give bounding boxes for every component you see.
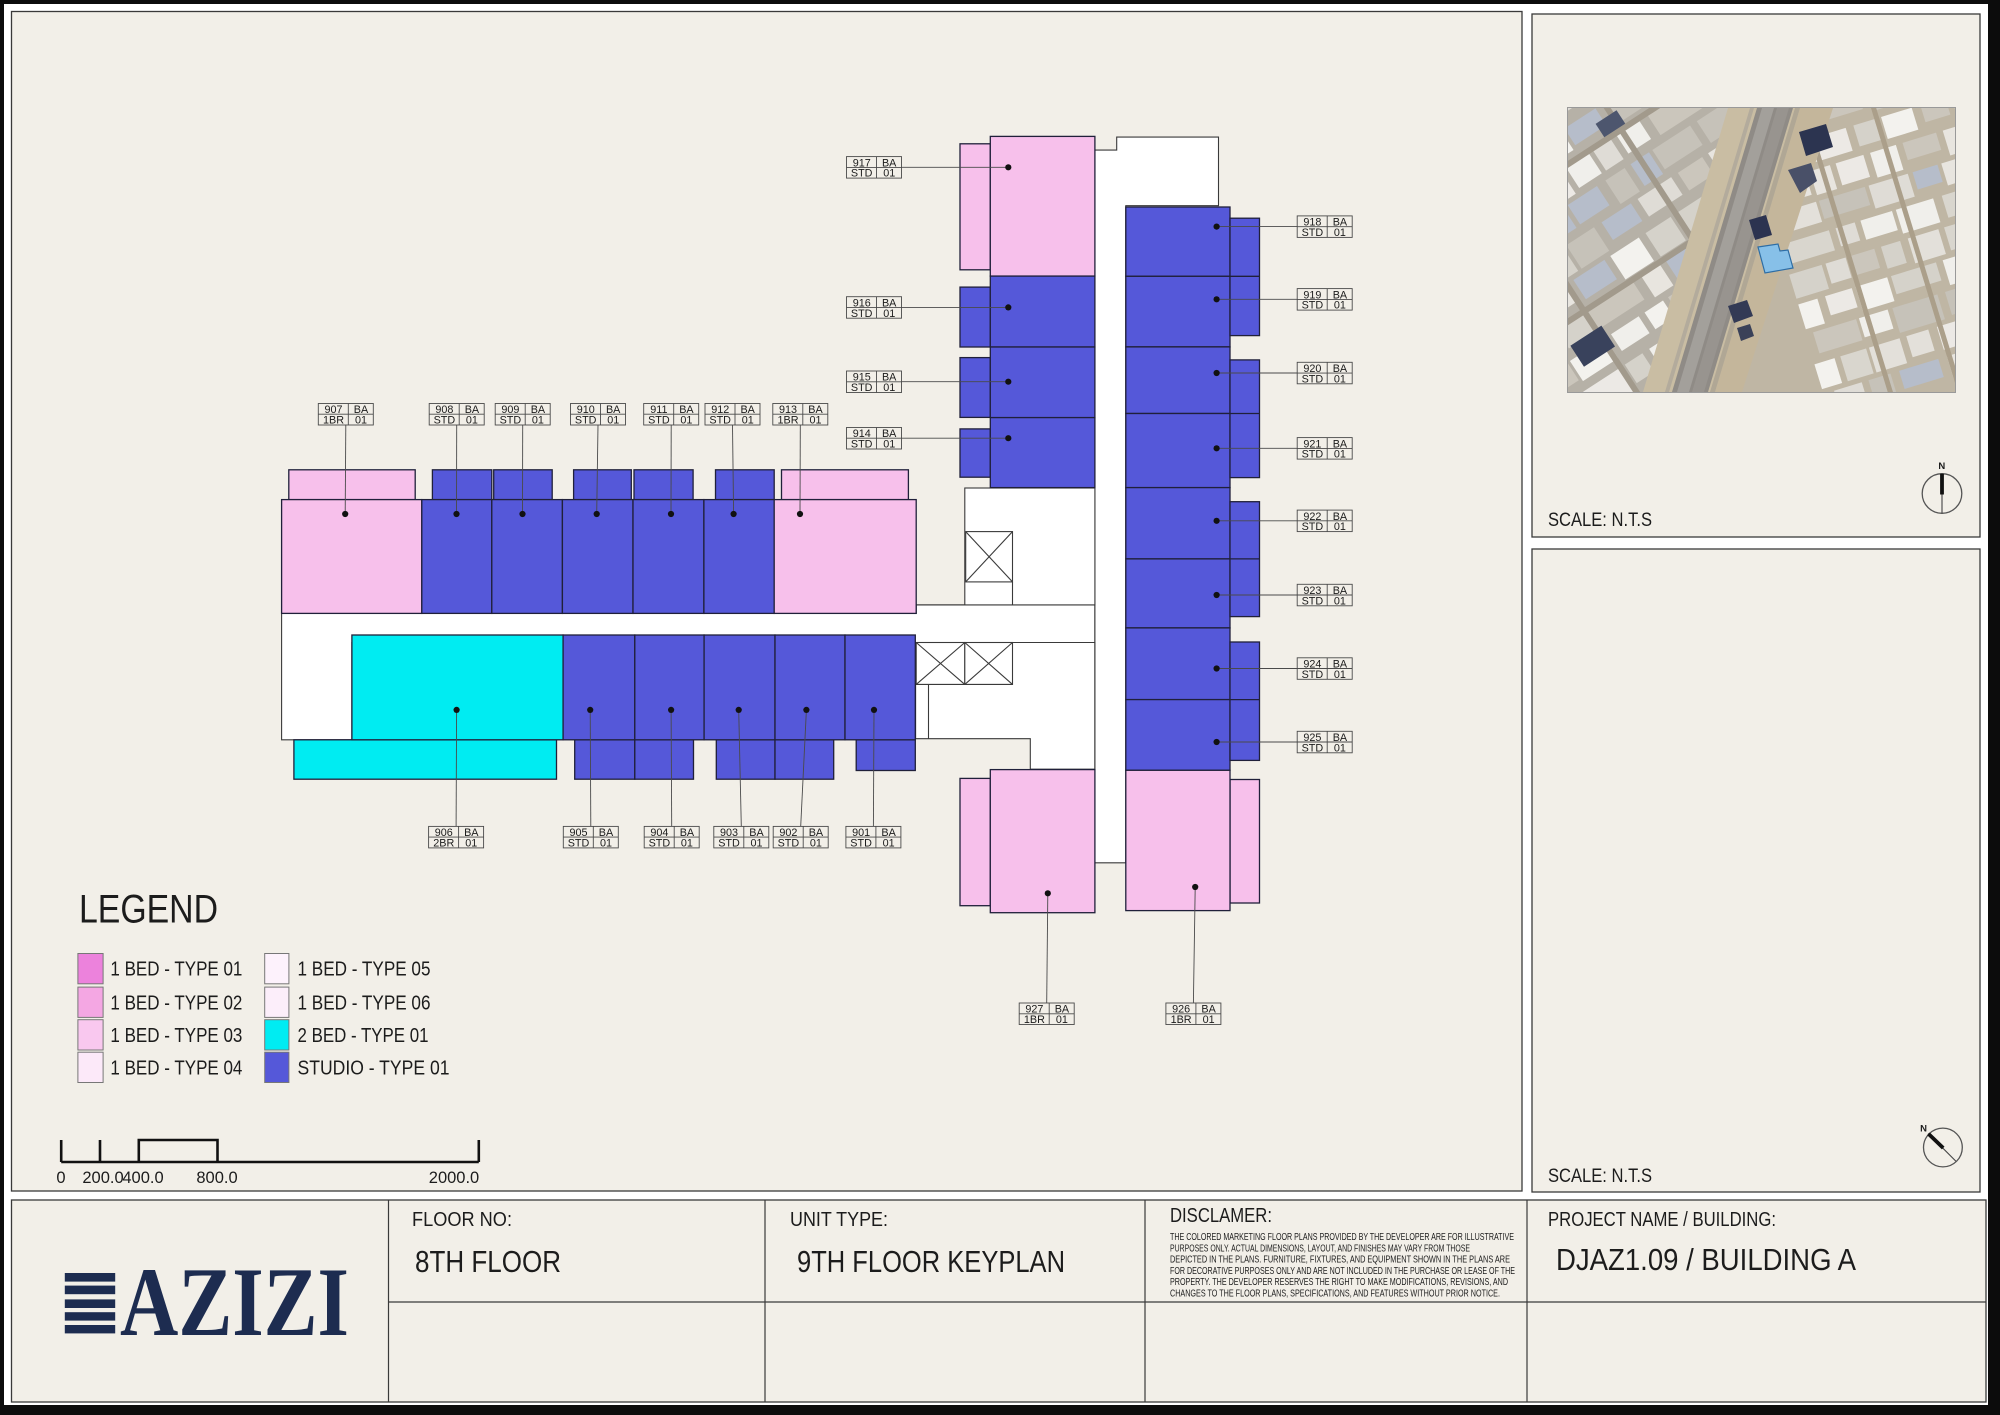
svg-text:01: 01 xyxy=(465,838,477,850)
svg-text:STD: STD xyxy=(1302,669,1324,681)
svg-text:PROJECT NAME / BUILDING:: PROJECT NAME / BUILDING: xyxy=(1548,1208,1776,1231)
svg-text:01: 01 xyxy=(883,838,895,850)
svg-text:0: 0 xyxy=(56,1169,65,1187)
svg-text:1 BED - TYPE 04: 1 BED - TYPE 04 xyxy=(110,1057,242,1079)
svg-text:LEGEND: LEGEND xyxy=(79,888,218,932)
svg-text:THE COLORED MARKETING FLOOR PL: THE COLORED MARKETING FLOOR PLANS PROVID… xyxy=(1170,1232,1514,1243)
svg-text:01: 01 xyxy=(680,415,692,427)
svg-text:STD: STD xyxy=(575,415,597,427)
svg-text:01: 01 xyxy=(1334,373,1346,385)
svg-text:1BR: 1BR xyxy=(777,415,798,427)
svg-text:1 BED - TYPE 06: 1 BED - TYPE 06 xyxy=(298,992,431,1014)
svg-text:01: 01 xyxy=(883,168,895,180)
svg-text:STD: STD xyxy=(851,168,873,180)
svg-text:N: N xyxy=(1920,1124,1927,1135)
svg-text:UNIT TYPE:: UNIT TYPE: xyxy=(790,1208,888,1231)
svg-text:STD: STD xyxy=(1302,521,1324,533)
svg-text:01: 01 xyxy=(1334,300,1346,312)
svg-text:01: 01 xyxy=(532,415,544,427)
svg-text:STD: STD xyxy=(649,838,671,850)
svg-text:01: 01 xyxy=(681,838,693,850)
svg-text:2BR: 2BR xyxy=(433,838,454,850)
svg-text:2 BED - TYPE 01: 2 BED - TYPE 01 xyxy=(298,1025,429,1047)
svg-text:01: 01 xyxy=(1334,227,1346,239)
svg-text:01: 01 xyxy=(883,308,895,320)
svg-text:STD: STD xyxy=(1302,449,1324,461)
svg-text:AZIZI: AZIZI xyxy=(120,1248,349,1357)
svg-text:01: 01 xyxy=(1334,521,1346,533)
svg-text:1BR: 1BR xyxy=(323,415,344,427)
svg-text:01: 01 xyxy=(1203,1014,1215,1026)
svg-text:01: 01 xyxy=(1334,669,1346,681)
svg-text:STD: STD xyxy=(500,415,522,427)
svg-text:STD: STD xyxy=(1302,595,1324,607)
svg-text:01: 01 xyxy=(1334,595,1346,607)
svg-text:STD: STD xyxy=(1302,373,1324,385)
svg-text:1 BED - TYPE 02: 1 BED - TYPE 02 xyxy=(110,992,242,1014)
svg-text:PROPERTY. THE DEVELOPER RESERV: PROPERTY. THE DEVELOPER RESERVES THE RIG… xyxy=(1170,1277,1508,1288)
svg-text:400.0: 400.0 xyxy=(122,1169,163,1187)
svg-text:STD: STD xyxy=(1302,227,1324,239)
svg-text:STD: STD xyxy=(718,838,740,850)
svg-text:STD: STD xyxy=(778,838,800,850)
svg-text:STD: STD xyxy=(434,415,456,427)
svg-text:01: 01 xyxy=(1334,742,1346,754)
svg-text:1 BED - TYPE 03: 1 BED - TYPE 03 xyxy=(110,1025,242,1047)
svg-text:01: 01 xyxy=(750,838,762,850)
svg-text:1 BED - TYPE 01: 1 BED - TYPE 01 xyxy=(110,959,242,981)
svg-text:01: 01 xyxy=(883,439,895,451)
svg-text:STUDIO - TYPE 01: STUDIO - TYPE 01 xyxy=(298,1057,450,1079)
svg-text:01: 01 xyxy=(810,838,822,850)
svg-text:01: 01 xyxy=(1056,1014,1068,1026)
svg-text:01: 01 xyxy=(1334,449,1346,461)
svg-text:STD: STD xyxy=(709,415,731,427)
svg-text:STD: STD xyxy=(850,838,872,850)
svg-text:PURPOSES ONLY. ACTUAL DIMENSIO: PURPOSES ONLY. ACTUAL DIMENSIONS, LAYOUT… xyxy=(1170,1243,1470,1254)
svg-text:STD: STD xyxy=(851,308,873,320)
svg-text:DEPICTED IN THE PLANS. FURNITU: DEPICTED IN THE PLANS. FURNITURE, FIXTUR… xyxy=(1170,1255,1510,1266)
svg-text:200.0: 200.0 xyxy=(82,1169,123,1187)
svg-text:1BR: 1BR xyxy=(1171,1014,1192,1026)
svg-text:01: 01 xyxy=(466,415,478,427)
svg-text:01: 01 xyxy=(355,415,367,427)
svg-text:SCALE: N.T.S: SCALE: N.T.S xyxy=(1548,1165,1652,1187)
svg-text:DJAZ1.09 / BUILDING A: DJAZ1.09 / BUILDING A xyxy=(1556,1242,1856,1277)
svg-text:STD: STD xyxy=(568,838,590,850)
svg-text:STD: STD xyxy=(1302,300,1324,312)
svg-text:01: 01 xyxy=(742,415,754,427)
svg-text:N: N xyxy=(1938,461,1945,472)
svg-text:8TH FLOOR: 8TH FLOOR xyxy=(415,1244,561,1279)
svg-text:STD: STD xyxy=(1302,742,1324,754)
svg-text:STD: STD xyxy=(851,382,873,394)
svg-text:STD: STD xyxy=(648,415,670,427)
svg-text:1BR: 1BR xyxy=(1024,1014,1045,1026)
svg-text:DISCLAMER:: DISCLAMER: xyxy=(1170,1204,1272,1227)
svg-text:800.0: 800.0 xyxy=(196,1169,237,1187)
svg-text:01: 01 xyxy=(809,415,821,427)
svg-text:2000.0: 2000.0 xyxy=(429,1169,479,1187)
svg-text:01: 01 xyxy=(883,382,895,394)
svg-text:1 BED - TYPE 05: 1 BED - TYPE 05 xyxy=(298,959,431,981)
svg-text:SCALE: N.T.S: SCALE: N.T.S xyxy=(1548,509,1652,531)
svg-text:01: 01 xyxy=(600,838,612,850)
svg-text:01: 01 xyxy=(607,415,619,427)
svg-text:FLOOR NO:: FLOOR NO: xyxy=(412,1208,512,1231)
svg-text:CHANGES TO THE FLOOR PLANS, SP: CHANGES TO THE FLOOR PLANS, SPECIFICATIO… xyxy=(1170,1289,1500,1300)
svg-text:FOR DECORATIVE PURPOSES ONLY A: FOR DECORATIVE PURPOSES ONLY AND ARE NOT… xyxy=(1170,1266,1515,1277)
svg-text:9TH FLOOR KEYPLAN: 9TH FLOOR KEYPLAN xyxy=(797,1244,1065,1279)
svg-text:STD: STD xyxy=(851,439,873,451)
